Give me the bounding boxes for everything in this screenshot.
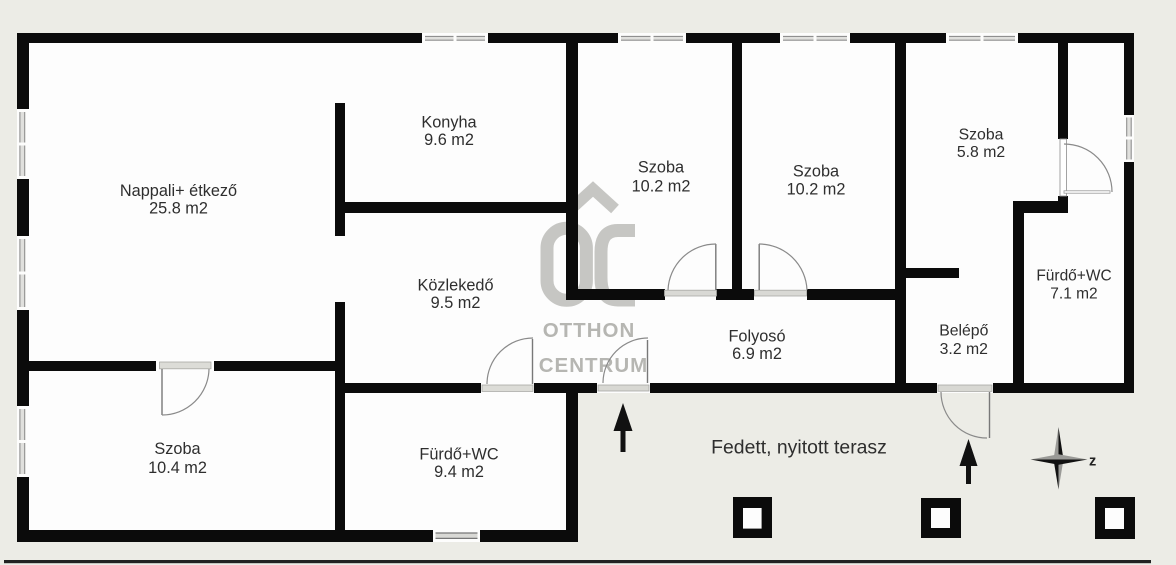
svg-text:Szoba: Szoba: [959, 126, 1004, 143]
svg-text:Fürdő+WC: Fürdő+WC: [419, 445, 498, 463]
svg-text:Szoba: Szoba: [793, 162, 840, 180]
svg-text:10.2 m2: 10.2 m2: [787, 180, 846, 198]
svg-text:9.5 m2: 9.5 m2: [431, 294, 481, 312]
svg-text:CENTRUM: CENTRUM: [539, 354, 649, 377]
svg-text:5.8 m2: 5.8 m2: [957, 144, 1005, 161]
svg-text:6.9 m2: 6.9 m2: [732, 345, 782, 363]
svg-text:OTTHON: OTTHON: [543, 319, 636, 342]
svg-text:Szoba: Szoba: [638, 158, 685, 176]
svg-text:Konyha: Konyha: [421, 113, 477, 131]
svg-text:Folyosó: Folyosó: [728, 327, 785, 345]
svg-text:Fürdő+WC: Fürdő+WC: [1036, 267, 1111, 284]
svg-text:9.4 m2: 9.4 m2: [434, 463, 484, 481]
svg-text:Nappali+ étkező: Nappali+ étkező: [120, 182, 237, 200]
svg-text:7.1 m2: 7.1 m2: [1050, 285, 1097, 302]
svg-text:Szoba: Szoba: [154, 440, 201, 458]
svg-text:9.6 m2: 9.6 m2: [424, 131, 474, 149]
svg-text:25.8 m2: 25.8 m2: [149, 200, 208, 218]
svg-text:Közlekedő: Közlekedő: [417, 276, 493, 294]
svg-text:10.4 m2: 10.4 m2: [148, 459, 207, 477]
svg-text:Fedett, nyitott terasz: Fedett, nyitott terasz: [711, 436, 887, 458]
svg-text:Belépő: Belépő: [939, 322, 988, 339]
svg-text:10.2 m2: 10.2 m2: [632, 177, 691, 195]
svg-text:3.2 m2: 3.2 m2: [940, 341, 988, 358]
svg-text:z: z: [1089, 454, 1096, 470]
